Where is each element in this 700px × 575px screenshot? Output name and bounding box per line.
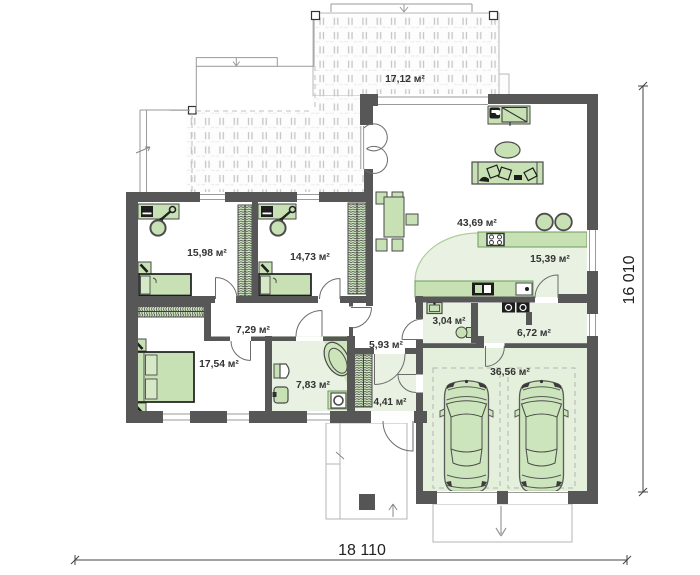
svg-text:15,39 м²: 15,39 м² [530,254,570,265]
svg-text:18 110: 18 110 [338,542,386,559]
svg-text:7,29 м²: 7,29 м² [236,325,271,336]
svg-text:43,69 м²: 43,69 м² [457,218,497,229]
svg-text:17,12 м²: 17,12 м² [385,74,425,85]
svg-text:17,54 м²: 17,54 м² [199,359,239,370]
svg-text:36,56 м²: 36,56 м² [490,367,530,378]
svg-text:16 010: 16 010 [621,255,638,304]
svg-text:7,83 м²: 7,83 м² [296,380,331,391]
svg-text:15,98 м²: 15,98 м² [187,248,227,259]
svg-text:3,04 м²: 3,04 м² [433,316,467,327]
svg-text:14,73 м²: 14,73 м² [290,252,330,263]
svg-text:6,72 м²: 6,72 м² [517,328,552,339]
svg-text:5,93 м²: 5,93 м² [369,340,404,351]
svg-text:4,41 м²: 4,41 м² [374,397,408,408]
